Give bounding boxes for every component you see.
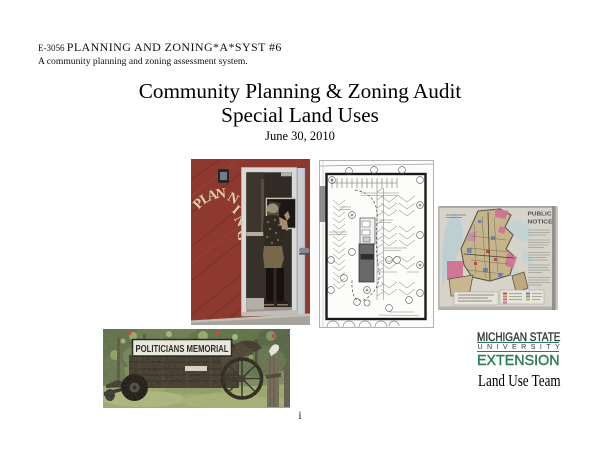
- svg-text:N: N: [215, 186, 226, 202]
